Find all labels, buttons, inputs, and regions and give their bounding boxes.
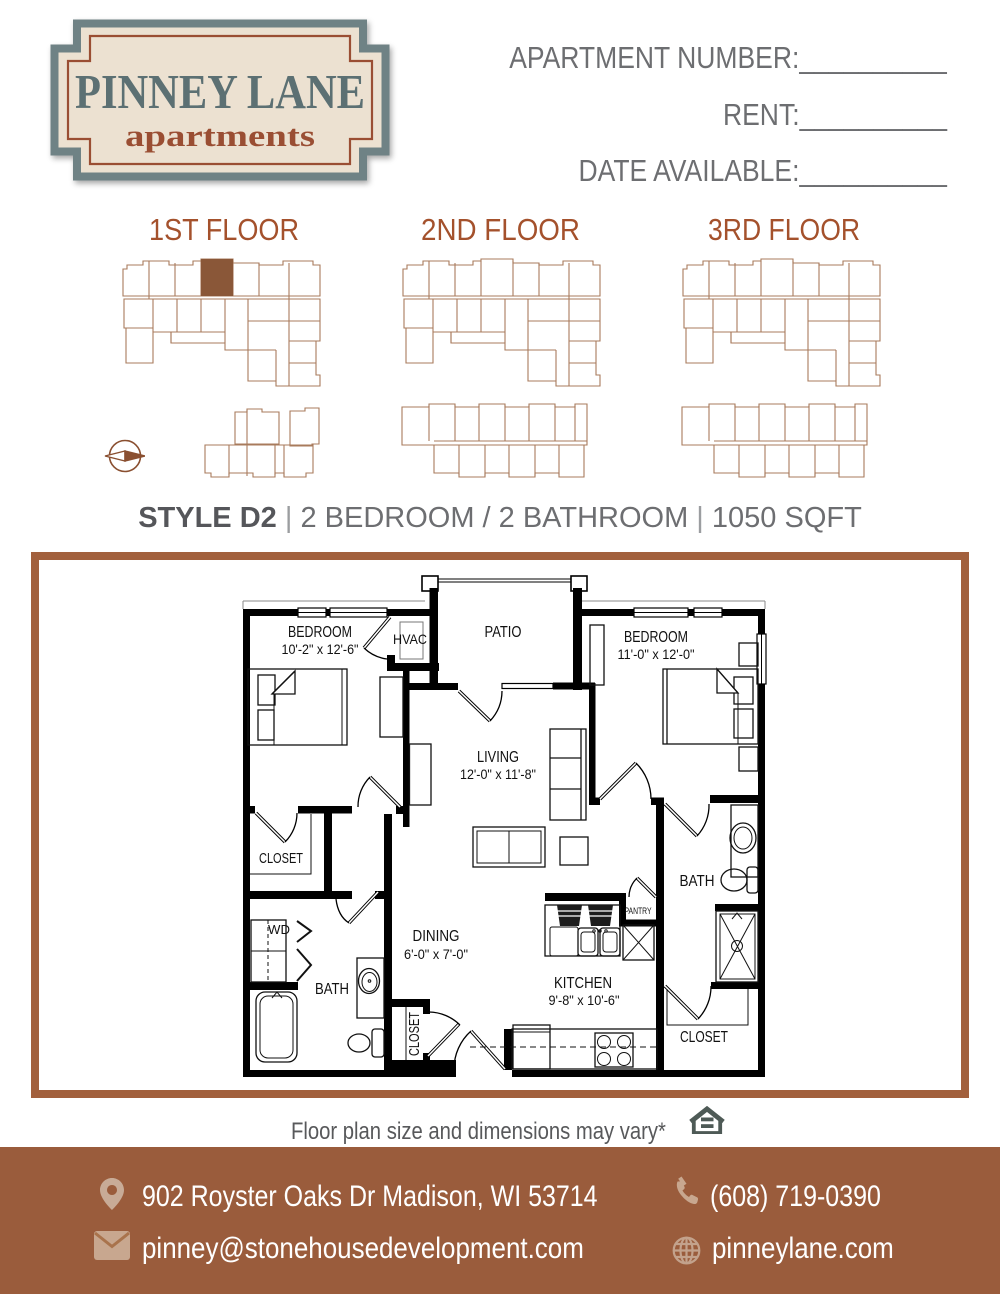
svg-text:DINING: DINING	[413, 928, 460, 945]
svg-text:BEDROOM: BEDROOM	[624, 629, 688, 646]
svg-text:KITCHEN: KITCHEN	[554, 975, 612, 992]
svg-text:PINNEY LANE: PINNEY LANE	[75, 64, 365, 119]
svg-text:BEDROOM: BEDROOM	[288, 624, 352, 641]
svg-text:apartments: apartments	[125, 118, 315, 153]
svg-text:PANTRY: PANTRY	[625, 906, 652, 917]
svg-text:HVAC: HVAC	[393, 631, 427, 647]
svg-text:BATH: BATH	[315, 981, 349, 998]
svg-text:BATH: BATH	[680, 873, 715, 890]
svg-text:WD: WD	[268, 922, 290, 937]
svg-text:9'-8" x 10'-6": 9'-8" x 10'-6"	[549, 992, 620, 1008]
svg-text:6'-0" x 7'-0": 6'-0" x 7'-0"	[404, 946, 468, 962]
svg-text:10'-2" x 12'-6": 10'-2" x 12'-6"	[282, 641, 359, 657]
svg-text:12'-0" x 11'-8": 12'-0" x 11'-8"	[460, 766, 536, 782]
svg-text:CLOSET: CLOSET	[407, 1012, 423, 1056]
svg-text:LIVING: LIVING	[477, 749, 519, 766]
svg-text:11'-0" x 12'-0": 11'-0" x 12'-0"	[618, 646, 695, 662]
svg-text:CLOSET: CLOSET	[259, 851, 303, 867]
svg-text:PATIO: PATIO	[485, 624, 522, 641]
svg-text:CLOSET: CLOSET	[680, 1029, 728, 1046]
